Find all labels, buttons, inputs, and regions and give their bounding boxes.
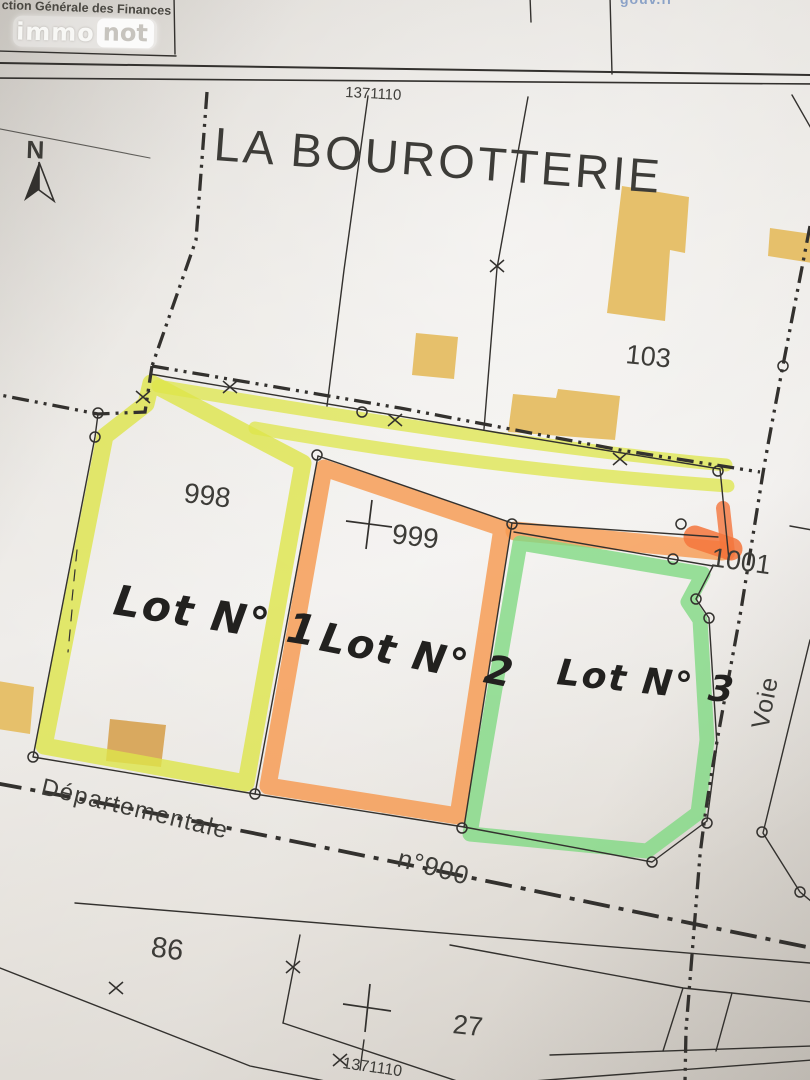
parcel-number-999: 999	[390, 518, 440, 554]
frame-line	[0, 63, 810, 75]
parcel-line	[450, 945, 810, 1002]
map-frame-lines	[0, 0, 810, 84]
frame-line	[0, 78, 810, 84]
header-box-line	[0, 51, 176, 56]
parcel-line	[75, 903, 810, 963]
sheet-number-bottom: 1371110	[341, 1055, 403, 1080]
north-arrow-icon	[39, 162, 54, 201]
north-arrow-icon	[24, 162, 39, 201]
cadastral-map-svg: N 1371110 LA BOUROTTERIE 998 999 1001 10…	[0, 0, 810, 1080]
building-footprint	[0, 681, 34, 734]
parcel-number-86: 86	[149, 931, 185, 967]
parcel-number-998: 998	[182, 477, 232, 513]
parcel-number-103: 103	[624, 339, 672, 374]
road-label-departementale: Départementale	[39, 774, 232, 845]
parcel-line	[0, 966, 330, 1080]
cadastre-website-text: gouv.fr	[620, 0, 673, 7]
header-box-line	[174, 0, 175, 54]
header-box-line	[610, 0, 612, 74]
cadastral-map-photo: ction Générale des Finances immo not gou…	[0, 0, 810, 1080]
lot1-handwritten-label: Lot N° 1	[110, 575, 321, 656]
lot1-highlight-outline	[44, 383, 303, 783]
building-footprint	[412, 333, 458, 379]
place-title: LA BOUROTTERIE	[212, 117, 664, 203]
municipal-boundary-line	[152, 92, 207, 366]
sheet-number-top: 1371110	[345, 84, 402, 104]
parcel-line	[790, 526, 810, 530]
parcel-line	[716, 993, 732, 1051]
handwritten-lot-labels: Lot N° 1 Lot N° 2 Lot N° 3	[110, 575, 737, 711]
parcel-line	[283, 935, 300, 1023]
survey-cross-marks	[343, 500, 392, 1032]
parcel-line	[550, 1046, 810, 1055]
parcel-line	[520, 1060, 810, 1080]
parcel-number-27: 27	[451, 1009, 484, 1042]
north-arrow: N	[24, 136, 54, 201]
lot3-handwritten-label: Lot N° 3	[555, 652, 737, 711]
road-label-n900: n°900	[394, 843, 473, 891]
building-footprint	[607, 186, 689, 321]
parcel-line	[663, 988, 683, 1051]
north-arrow-label: N	[26, 136, 45, 165]
parcel-number-1001: 1001	[709, 542, 773, 580]
parcel-line	[792, 95, 810, 130]
parcel-line	[0, 128, 150, 158]
road-label-voie: Voie	[746, 674, 784, 731]
header-box-line	[530, 0, 531, 22]
